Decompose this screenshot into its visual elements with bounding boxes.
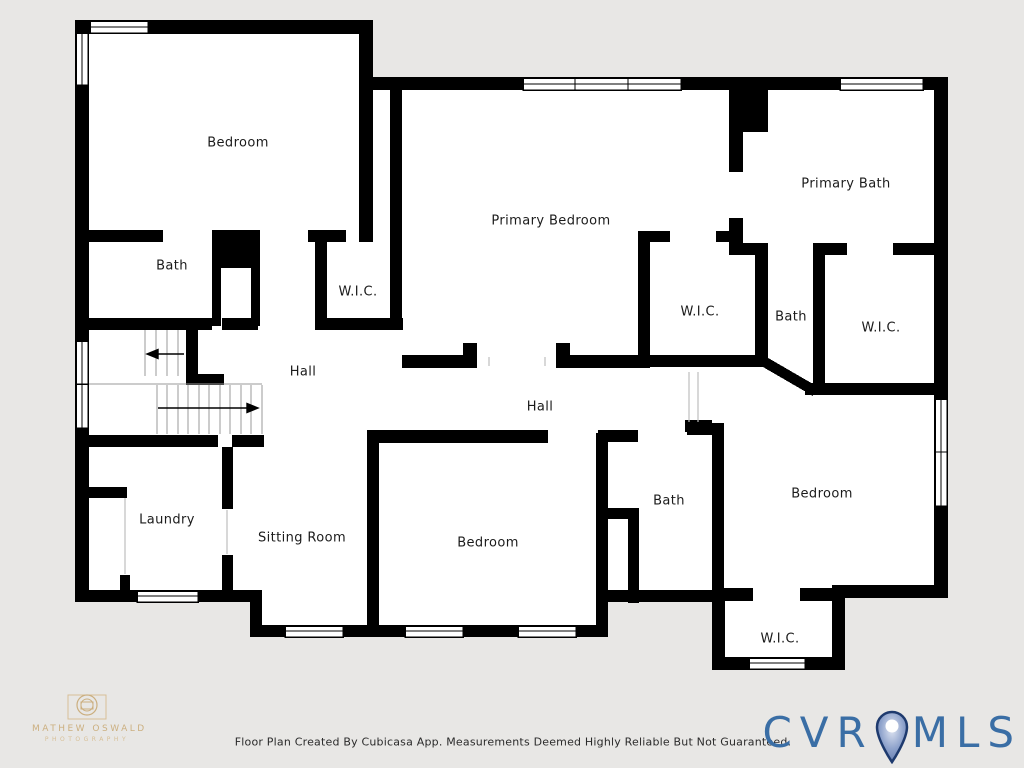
room-label-bath-middle: Bath xyxy=(775,310,807,325)
brand-text-cvr: CVR xyxy=(762,710,873,756)
watermark-subtitle: PHOTOGRAPHY xyxy=(32,736,142,743)
room-label-bath-left: Bath xyxy=(156,259,188,274)
room-label-laundry: Laundry xyxy=(139,513,195,528)
room-label-bedroom-bottom: Bedroom xyxy=(457,536,519,551)
room-label-wic-bottom: W.I.C. xyxy=(760,632,799,647)
room-label-wic-right: W.I.C. xyxy=(861,321,900,336)
floor-plan-screenshot: Bedroom Bath W.I.C. Primary Bedroom Prim… xyxy=(0,0,1024,768)
room-label-sitting-room: Sitting Room xyxy=(258,531,346,546)
cvrmls-logo: CVR MLS xyxy=(762,710,1022,762)
room-label-primary-bedroom: Primary Bedroom xyxy=(491,214,610,229)
room-label-hall-center: Hall xyxy=(527,400,554,415)
floor-plan-drawing xyxy=(0,0,1024,768)
room-label-hall-left: Hall xyxy=(290,365,317,380)
room-label-bedroom-top-left: Bedroom xyxy=(207,136,269,151)
room-label-bedroom-right: Bedroom xyxy=(791,487,853,502)
watermark-name: MATHEW OSWALD xyxy=(32,724,142,734)
room-label-wic-middle: W.I.C. xyxy=(680,305,719,320)
camera-icon xyxy=(64,692,110,722)
room-label-primary-bath: Primary Bath xyxy=(801,177,890,192)
photographer-watermark: MATHEW OSWALD PHOTOGRAPHY xyxy=(32,692,142,743)
brand-text-mls: MLS xyxy=(912,710,1022,756)
room-label-wic-left: W.I.C. xyxy=(338,285,377,300)
footer-disclaimer: Floor Plan Created By Cubicasa App. Meas… xyxy=(235,736,792,749)
room-label-bath-bottom: Bath xyxy=(653,494,685,509)
map-pin-icon xyxy=(874,710,910,764)
